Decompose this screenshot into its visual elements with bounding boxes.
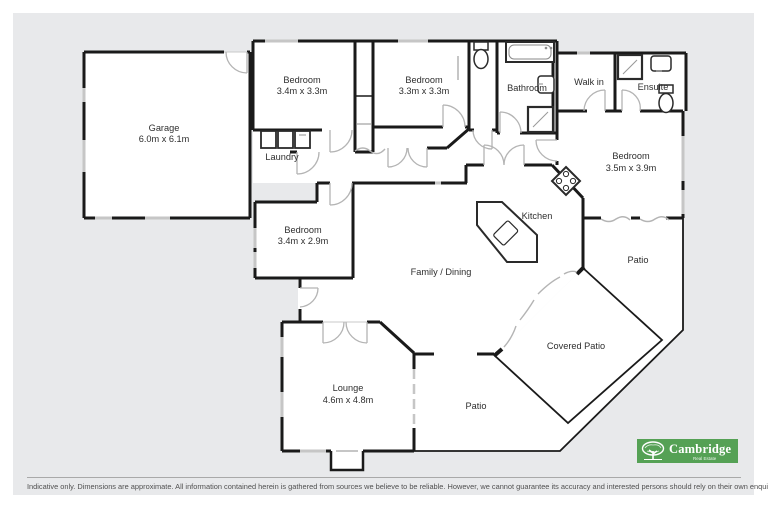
floor-areas (84, 41, 686, 470)
floorplan-drawing: Garage 6.0m x 6.1m Bedroom 3.4m x 3.3m B… (0, 0, 768, 512)
lounge-dims: 4.6m x 4.8m (323, 395, 374, 405)
patio-bottom-label: Patio (466, 401, 487, 411)
garage-dims: 6.0m x 6.1m (139, 134, 190, 144)
agency-tagline: Real Estate (693, 456, 716, 461)
patio-right-label: Patio (628, 255, 649, 265)
footer-divider (27, 477, 741, 478)
bedroom-top2-label: Bedroom (405, 75, 443, 85)
bathroom-shower-icon (528, 107, 553, 132)
bathroom-label: Bathroom (507, 83, 547, 93)
bedroom-right-dims: 3.5m x 3.9m (606, 163, 657, 173)
laundry-appliances (261, 131, 310, 148)
bathtub-icon (506, 42, 554, 62)
ensuite-vanity-icon (651, 56, 671, 71)
footer-disclaimer: Indicative only. Dimensions are approxim… (27, 482, 743, 491)
garage-label: Garage (149, 123, 180, 133)
floorplan-page: Garage 6.0m x 6.1m Bedroom 3.4m x 3.3m B… (0, 0, 768, 512)
bedroom-mid-dims: 3.4m x 2.9m (278, 236, 329, 246)
lounge-label: Lounge (333, 383, 364, 393)
ensuite-label: Ensuite (638, 82, 669, 92)
covered-patio-label: Covered Patio (547, 341, 605, 351)
bedroom-top1-label: Bedroom (283, 75, 321, 85)
tree-icon (637, 439, 667, 463)
bedroom-mid-label: Bedroom (284, 225, 322, 235)
agency-name: Cambridge (669, 442, 731, 457)
ensuite-shower-icon (618, 55, 642, 79)
bedroom-top1-dims: 3.4m x 3.3m (277, 86, 328, 96)
walkin-label: Walk in (574, 77, 604, 87)
kitchen-label: Kitchen (522, 211, 553, 221)
bedroom-top2-dims: 3.3m x 3.3m (399, 86, 450, 96)
family-dining-label: Family / Dining (411, 267, 472, 277)
wc-toilet-icon (474, 42, 488, 69)
laundry-label: Laundry (265, 152, 299, 162)
agency-logo: Cambridge Real Estate (637, 439, 738, 463)
bedroom-right-label: Bedroom (612, 151, 650, 161)
